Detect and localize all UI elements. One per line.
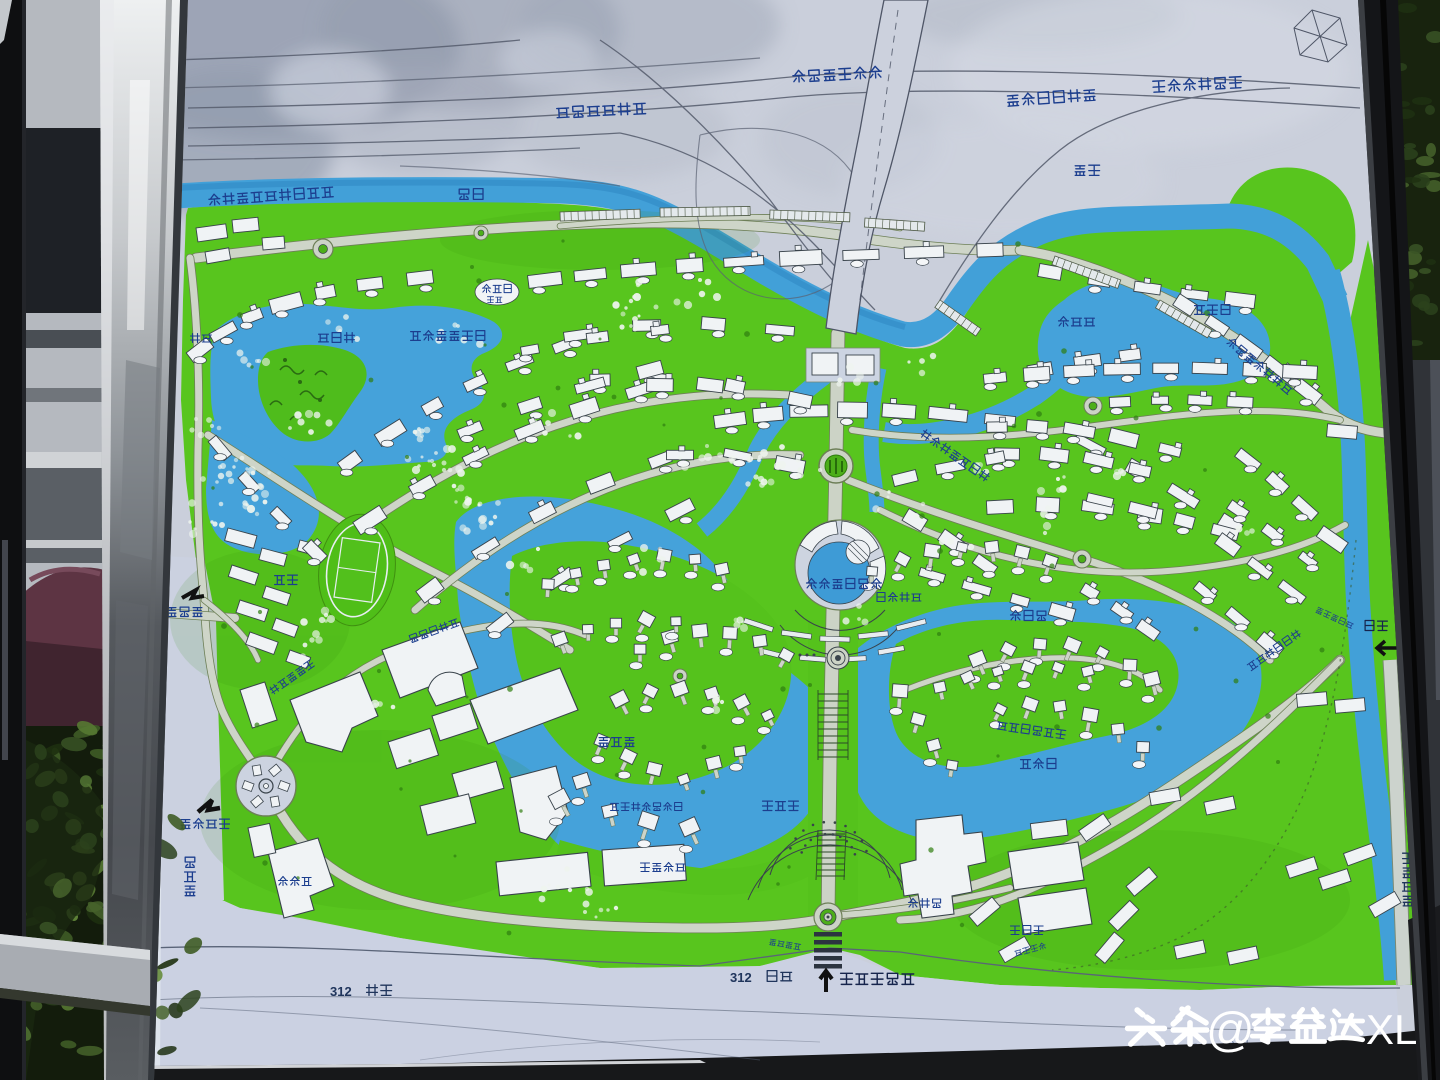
svg-text:312: 312	[330, 984, 352, 999]
svg-text:312: 312	[730, 970, 752, 985]
svg-text:XL: XL	[1366, 1006, 1417, 1053]
svg-text:@: @	[1206, 1004, 1255, 1057]
